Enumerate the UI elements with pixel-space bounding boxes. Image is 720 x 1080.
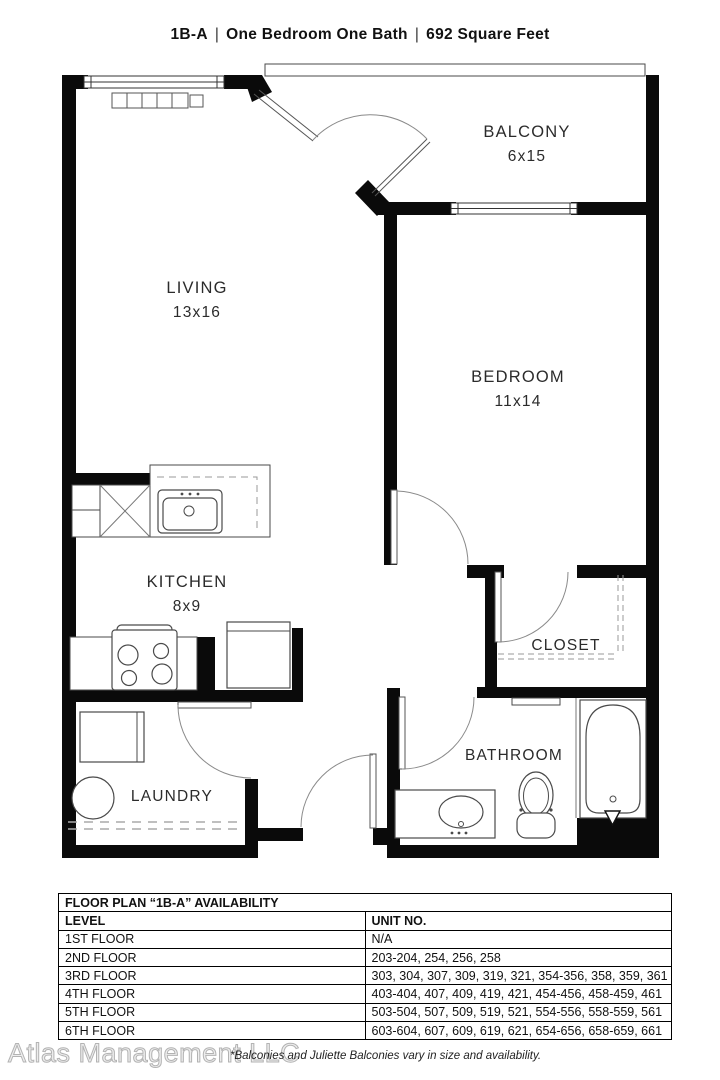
units-cell: 203-204, 254, 256, 258 — [365, 948, 672, 966]
laundry-dashed-counter — [68, 822, 243, 829]
table-row: 1ST FLOOR N/A — [59, 930, 672, 948]
bathroom-label: BATHROOM — [465, 747, 563, 764]
units-cell: 403-404, 407, 409, 419, 421, 454-456, 45… — [365, 985, 672, 1003]
kitchen-label: KITCHEN — [147, 573, 228, 591]
closet-label: CLOSET — [531, 637, 600, 654]
level-cell: 1ST FLOOR — [59, 930, 366, 948]
balcony-label: BALCONY — [483, 123, 570, 141]
living-label: LIVING — [166, 279, 227, 297]
level-column-header: LEVEL — [59, 912, 366, 930]
table-row: 5TH FLOOR 503-504, 507, 509, 519, 521, 5… — [59, 1003, 672, 1021]
bedroom-window — [451, 203, 577, 214]
kitchen-dims: 8x9 — [173, 598, 202, 615]
bedroom-dims: 11x14 — [494, 393, 541, 410]
level-cell: 2ND FLOOR — [59, 948, 366, 966]
baseboard-heater — [112, 93, 203, 108]
living-window — [84, 76, 224, 88]
balcony-door — [254, 90, 430, 196]
table-row: 3RD FLOOR 303, 304, 307, 309, 319, 321, … — [59, 967, 672, 985]
laundry-door — [178, 702, 251, 778]
floor-plan-page: { "title": { "unit": "1B-A", "separator"… — [0, 0, 720, 1080]
dryer — [72, 777, 114, 819]
table-title-row: FLOOR PLAN “1B-A” AVAILABILITY — [59, 894, 672, 912]
entry-door — [301, 754, 376, 828]
floor-plan-drawing: BALCONY 6x15 LIVING 13x16 BEDROOM 11x14 … — [0, 0, 720, 890]
living-dims: 13x16 — [173, 304, 221, 321]
balcony-footnote: *Balconies and Juliette Balconies vary i… — [230, 1050, 541, 1062]
units-cell: 503-504, 507, 509, 519, 521, 554-556, 55… — [365, 1003, 672, 1021]
table-row: 4TH FLOOR 403-404, 407, 409, 419, 421, 4… — [59, 985, 672, 1003]
refrigerator — [227, 622, 290, 688]
units-cell: 603-604, 607, 609, 619, 621, 654-656, 65… — [365, 1022, 672, 1040]
balcony-railing — [265, 64, 645, 76]
table-header-row: LEVEL UNIT NO. — [59, 912, 672, 930]
units-cell: 303, 304, 307, 309, 319, 321, 354-356, 3… — [365, 967, 672, 985]
bedroom-label: BEDROOM — [471, 368, 565, 386]
bathroom-shelf — [512, 698, 560, 705]
washer — [80, 712, 144, 762]
bathroom-door — [399, 697, 474, 769]
level-cell: 3RD FLOOR — [59, 967, 366, 985]
level-cell: 4TH FLOOR — [59, 985, 366, 1003]
table-row: 2ND FLOOR 203-204, 254, 256, 258 — [59, 948, 672, 966]
toilet — [517, 772, 555, 838]
laundry-label: LAUNDRY — [131, 788, 213, 805]
units-cell: N/A — [365, 930, 672, 948]
vanity-sink — [395, 790, 495, 838]
level-cell: 5TH FLOOR — [59, 1003, 366, 1021]
balcony-dims: 6x15 — [508, 148, 546, 165]
availability-table: FLOOR PLAN “1B-A” AVAILABILITY LEVEL UNI… — [58, 893, 672, 1040]
kitchen-sink — [158, 490, 222, 533]
closet-door — [495, 572, 568, 642]
stove — [112, 625, 177, 690]
units-column-header: UNIT NO. — [365, 912, 672, 930]
table-title: FLOOR PLAN “1B-A” AVAILABILITY — [59, 894, 672, 912]
bedroom-door — [391, 490, 468, 564]
bathtub — [580, 700, 646, 825]
